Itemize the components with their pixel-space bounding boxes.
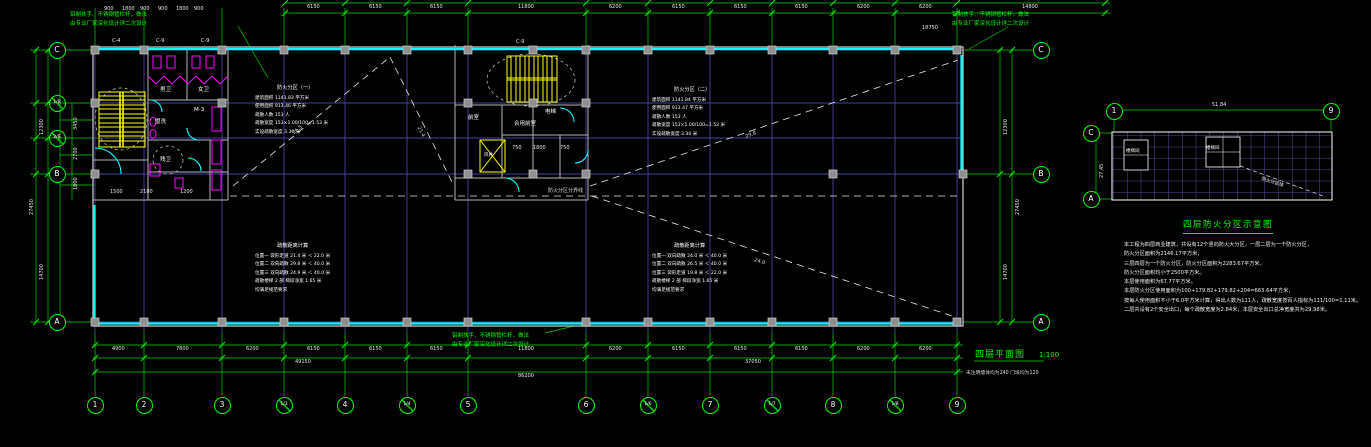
text-line: 疏散楼梯 2 部 梯段净宽 1.65 米: [652, 278, 727, 286]
drawing-title-note: 未注明墙体均为240 门垛均为120: [966, 369, 1039, 376]
text-line: 位置二 双向疏散 29.8 米 ＜ 40.0 米: [255, 261, 330, 269]
text-line: 位置一 双向疏散 24.0 米 ＜ 40.0 米: [652, 253, 727, 261]
railing-note-top-right: 铝制扶手、不锈钢管栏杆，做法 由专业厂家深化设计详二次设计: [952, 11, 1029, 28]
keyplan-title: 四层防火分区示意图: [1183, 218, 1273, 234]
text-line: 均满足规范要求: [255, 287, 330, 295]
text-line: 防火分区面积均小于2500平方米。: [1124, 269, 1361, 278]
spec-lines: 建筑面积 1141.83 平方米使用面积 913.46 平方米疏散人数 153 …: [255, 95, 328, 137]
text-line: 位置二 双向疏散 26.5 米 ＜ 40.0 米: [652, 261, 727, 269]
text-line: 疏散宽度 153×1.00/100=1.53 米: [652, 122, 725, 130]
text-line: 按每人使用面积不小于6.0平方米计算，得出人数为111人，疏散宽度按百人指标为1…: [1124, 297, 1361, 306]
text-line: 位置三 袋形走道 19.8 米 ＜ 22.0 米: [652, 270, 727, 278]
spec-heading: 疏散距离计算: [674, 242, 727, 252]
spec-block-1: 防火分区（一） 建筑面积 1141.83 平方米使用面积 913.46 平方米疏…: [255, 84, 328, 137]
text-line: 实设疏散宽度 3.30 米: [652, 131, 725, 139]
text-line: 使用面积 913.46 平方米: [255, 103, 328, 111]
text-line: 实设疏散宽度 3.30 米: [255, 129, 328, 137]
sanitary-fixtures: [148, 56, 228, 190]
text-line: 二层共设有2个安全出口，每个疏散宽度为2.84米，本层安全出口总净宽度共为29.…: [1124, 306, 1361, 315]
spec-heading: 防火分区（一）: [277, 84, 328, 94]
text-line: 均满足规范要求: [652, 287, 727, 295]
spec-block-3: 疏散距离计算 位置一 袋形走道 21.4 米 ＜ 22.0 米位置二 双向疏散 …: [255, 242, 330, 295]
text-line: 疏散人数 153 人: [652, 114, 725, 122]
spec-block-2: 防火分区（二） 建筑面积 1141.84 平方米使用面积 913.47 平方米疏…: [652, 86, 725, 139]
walls: [93, 45, 963, 326]
text-line: 位置三 双向疏散 24.9 米 ＜ 40.0 米: [255, 270, 330, 278]
railing-note-line1: 铝制扶手、不锈钢管栏杆，做法: [70, 11, 147, 20]
plan-linework: [0, 0, 1371, 447]
text-line: 疏散楼梯 2 部 梯段净宽 1.65 米: [255, 278, 330, 286]
text-line: 疏散宽度 153×1.00/100=1.53 米: [255, 120, 328, 128]
spec-lines: 位置一 袋形走道 21.4 米 ＜ 22.0 米位置二 双向疏散 29.8 米 …: [255, 253, 330, 295]
text-line: 本工程为四层商业建筑，共设有12个竖向防火大分区，一层二层为一个防火分区，: [1124, 241, 1361, 250]
shaft-hatch: [480, 140, 505, 172]
spec-heading: 防火分区（二）: [674, 86, 725, 96]
drawing-title-text: 四层平面图: [975, 350, 1025, 360]
spec-lines: 位置一 双向疏散 24.0 米 ＜ 40.0 米位置二 双向疏散 26.5 米 …: [652, 253, 727, 295]
railing-note-line1: 铝制扶手、不锈钢管栏杆，做法: [452, 332, 529, 341]
drawing-scale: 1:100: [1039, 351, 1059, 359]
key-plan: [1112, 132, 1332, 200]
text-line: 位置一 袋形走道 21.4 米 ＜ 22.0 米: [255, 253, 330, 261]
text-line: 三层四层为一个防火分区，防火分区面积为2283.67平方米，: [1124, 260, 1361, 269]
cad-viewport[interactable]: 4900780062006150615061501180062006150615…: [0, 0, 1371, 447]
text-line: 建筑面积 1141.84 平方米: [652, 97, 725, 105]
spec-heading: 疏散距离计算: [277, 242, 330, 252]
text-line: 建筑面积 1141.83 平方米: [255, 95, 328, 103]
railing-note-line2: 由专业厂家深化设计详二次设计: [952, 20, 1029, 29]
railing-note-line2: 由专业厂家深化设计详二次设计: [70, 20, 147, 29]
fire-compartment-notes: 本工程为四层商业建筑，共设有12个竖向防火大分区，一层二层为一个防火分区，防火分…: [1124, 241, 1361, 315]
text-line: 使用面积 913.47 平方米: [652, 105, 725, 113]
text-line: 疏散人数 153 人: [255, 112, 328, 120]
text-line: 本层防火分区使用面积为100+179.82+179.82+204=663.64平…: [1124, 287, 1361, 296]
text-line: 防火分区面积为2146.17平方米，: [1124, 250, 1361, 259]
spec-lines: 建筑面积 1141.84 平方米使用面积 913.47 平方米疏散人数 153 …: [652, 97, 725, 139]
dashed-ellipses: [95, 54, 575, 174]
railing-note-line2: 由专业厂家深化设计详二次设计: [452, 341, 529, 350]
axis-grid: [93, 45, 963, 333]
spec-block-4: 疏散距离计算 位置一 双向疏散 24.0 米 ＜ 40.0 米位置二 双向疏散 …: [652, 242, 727, 295]
drawing-title: 四层平面图1:100: [975, 347, 1059, 360]
railing-note-top-left: 铝制扶手、不锈钢管栏杆，做法 由专业厂家深化设计详二次设计: [70, 11, 147, 28]
railing-note-bottom: 铝制扶手、不锈钢管栏杆，做法 由专业厂家深化设计详二次设计: [452, 332, 529, 349]
railing-note-line1: 铝制扶手、不锈钢管栏杆，做法: [952, 11, 1029, 20]
text-line: 本层使用面积为67.77平方米。: [1124, 278, 1361, 287]
